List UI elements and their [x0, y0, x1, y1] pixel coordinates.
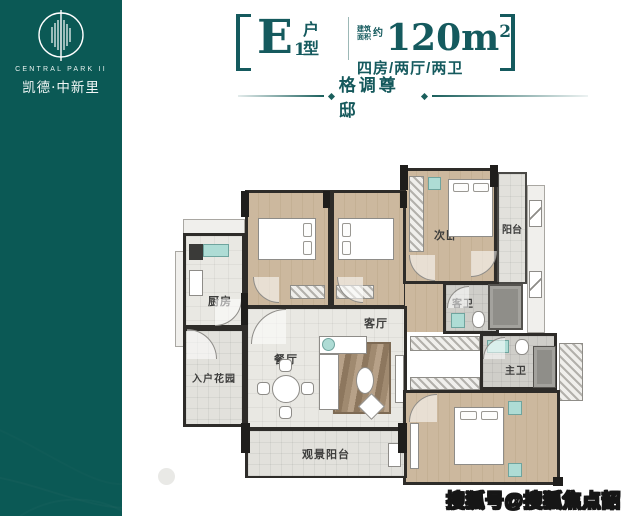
- nightstand: [508, 463, 522, 477]
- toilet: [515, 339, 529, 355]
- bed: [338, 218, 394, 260]
- promo-page: CENTRAL PARK II 凯德·中新里 E1 户 型 建筑面积 约 120…: [0, 0, 639, 516]
- coffee-table: [356, 367, 374, 394]
- dining-chair: [301, 382, 314, 395]
- kitchen-sink: [203, 244, 229, 257]
- dining-chair: [257, 382, 270, 395]
- diamond-icon: [328, 93, 335, 100]
- bed: [454, 407, 504, 465]
- ac-platform: [527, 185, 545, 333]
- shower-area: [488, 284, 523, 330]
- brand-logo: CENTRAL PARK II 凯德·中新里: [0, 8, 122, 96]
- room-label: 客厅: [364, 315, 388, 331]
- area-info: 建筑面积 约 120m2 四房/两厅/两卫: [357, 14, 511, 78]
- decorative-leaf-curves-icon: [0, 366, 122, 516]
- brand-name-cn: 凯德·中新里: [0, 76, 122, 96]
- stove: [189, 270, 203, 296]
- nightstand: [428, 177, 441, 190]
- unit-code: E1: [257, 12, 305, 74]
- floorplan: 厨房 入户花园 次卧 次卧: [175, 145, 635, 490]
- room-label: 阳台: [502, 221, 522, 236]
- bathroom-sink: [451, 313, 465, 328]
- shower-area: [533, 346, 556, 388]
- logo-mark-icon: [33, 8, 89, 64]
- header-divider: [348, 17, 349, 60]
- room-label: 入户花园: [192, 370, 236, 385]
- diamond-icon: [421, 93, 428, 100]
- toilet: [472, 311, 485, 328]
- room-label: 主卫: [505, 362, 527, 377]
- unit-type-label: 户 型: [303, 21, 319, 59]
- ac-unit-icon: [529, 271, 542, 298]
- watermark: 搜狐号@搜狐焦点韶关站: [446, 486, 639, 516]
- decorative-circle: [158, 468, 175, 485]
- hallway: [405, 284, 445, 332]
- tagline-text: 格调尊邸: [339, 71, 417, 121]
- wardrobe: [410, 336, 480, 351]
- brand-name-en: CENTRAL PARK II: [0, 66, 122, 73]
- right-bracket: [500, 14, 515, 71]
- area-approx: 约: [373, 24, 383, 39]
- tagline-line-right: [432, 95, 588, 97]
- area-value: 120m2: [386, 14, 511, 56]
- wardrobe: [410, 377, 480, 390]
- brand-sidebar: CENTRAL PARK II 凯德·中新里: [0, 0, 122, 516]
- area-prefix: 建筑面积: [357, 26, 371, 42]
- sofa-side: [319, 354, 339, 410]
- tagline-divider: 格调尊邸: [238, 86, 588, 106]
- ac-platform: [559, 343, 583, 401]
- bed: [448, 179, 493, 237]
- dresser: [410, 423, 419, 469]
- room-label: 观景阳台: [302, 446, 350, 462]
- wardrobe: [290, 285, 325, 299]
- wardrobe: [409, 176, 424, 252]
- fridge: [189, 244, 203, 260]
- room-view-balcony: 观景阳台: [245, 428, 407, 478]
- ac-unit-icon: [529, 200, 542, 227]
- plant: [322, 338, 335, 351]
- bed: [258, 218, 316, 260]
- tagline-line-left: [238, 95, 324, 97]
- dining-table: [272, 375, 300, 403]
- left-bracket: [236, 14, 251, 71]
- dining-chair: [279, 359, 292, 372]
- room-balcony: 阳台: [497, 172, 527, 284]
- nightstand: [508, 401, 522, 415]
- dining-chair: [279, 406, 292, 419]
